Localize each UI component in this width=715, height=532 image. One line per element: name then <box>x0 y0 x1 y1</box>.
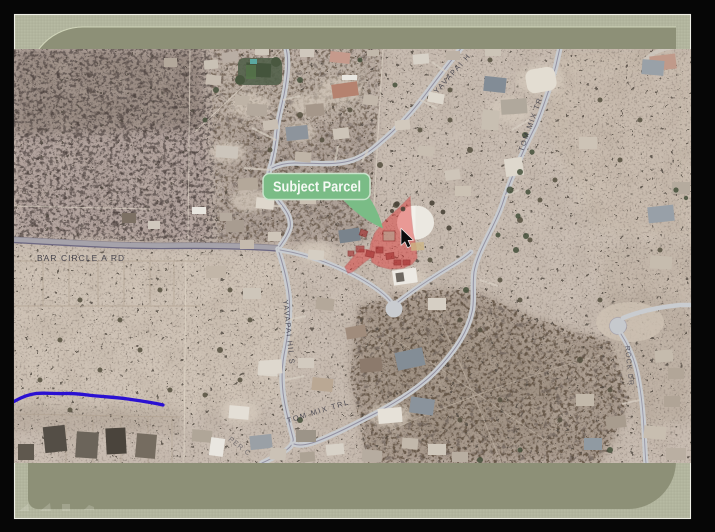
svg-text:Subject Parcel: Subject Parcel <box>273 178 361 195</box>
svg-text:BAR CIRCLE A RD: BAR CIRCLE A RD <box>37 253 125 263</box>
